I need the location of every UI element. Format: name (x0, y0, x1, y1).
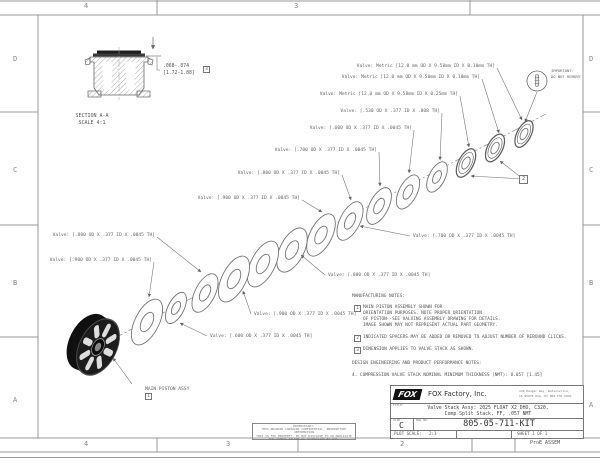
callout-valve-800-a: Valve: [.800 OD X .377 ID X .0045 TH] (238, 171, 340, 176)
zone-right-a: A (589, 401, 593, 409)
zone-bottom-2: 2 (400, 440, 404, 448)
note1-flag: 1 (354, 305, 361, 312)
flag-note-3: 3 (203, 66, 210, 73)
zone-left-a: A (13, 396, 17, 404)
zone-top-3: 3 (294, 2, 298, 10)
callout-valve-700-b: Valve: [.700 OD X .377 ID X .0045 TH] (413, 234, 515, 239)
callout-valve-600-b: Valve: [.600 OD X .377 ID X .0045 TH] (210, 334, 312, 339)
title-label: TITLE: (393, 404, 404, 407)
section-scale-label: SCALE 4:1 (78, 121, 105, 127)
plot-scale-label: PLOT SCALE: (394, 432, 422, 437)
drawing-title-line1: Valve Stack Assy: 2025 FLOAT X2 DHO, C32… (427, 406, 548, 412)
important-note-line2: DO NOT REMOVE (551, 75, 581, 79)
flag-note-1: 1 (145, 393, 152, 400)
company-address-line2: CA 95076 USA Ph 800-FOX-SHOX (519, 395, 571, 398)
note4-text: 4. COMPRESSION VALVE STACK NOMINAL MINIM… (352, 373, 542, 378)
sheet-number: SHEET 1 OF 1 (517, 432, 547, 437)
dwg-no-label: DWG NO. (416, 419, 429, 422)
zone-bottom-3: 3 (226, 440, 230, 448)
flag-note-2: 2 (519, 175, 528, 184)
drawing-title-line2: Comp Split Stack, FF, .057 NMT (445, 412, 532, 418)
section-view-drawing (85, 37, 161, 100)
fox-logo: FOX (393, 389, 423, 400)
dwg-no-value: 805-05-711-KIT (463, 420, 535, 430)
dimension-mm: [1.72-1.88] (163, 71, 195, 77)
zone-left-b: B (13, 279, 17, 287)
callout-valve-900-b: Valve: [.900 OD X .377 ID X .0045 TH] (50, 258, 152, 263)
design-notes-header: DESIGN ENGINEERING AND PRODUCT PERFORMAN… (352, 361, 482, 366)
zone-right-d: D (589, 55, 593, 63)
callout-valve-800-c: Valve: [.800 OD X .377 ID X .0045 TH] (328, 273, 430, 278)
zone-top-4: 4 (84, 2, 88, 10)
zone-bottom-4: 4 (84, 440, 88, 448)
callout-valve-metric-025: Valve: Metric [12.0 mm OD X 9.58mm ID X … (320, 92, 458, 97)
zone-right-b: B (589, 279, 593, 287)
main-piston-label: MAIN PISTON ASSY (145, 387, 189, 392)
note3-flag: 3 (354, 347, 361, 354)
callout-valve-900-a: Valve: [.900 OD X .377 ID X .0045 TH] (198, 196, 300, 201)
drawing-sheet: 4 3 4 3 2 D C B A D C B A SECTION A-A SC… (0, 0, 600, 463)
note2-flag: 2 (354, 335, 361, 342)
zone-left-d: D (13, 55, 17, 63)
zone-left-c: C (13, 166, 17, 174)
size-value: C (399, 421, 404, 430)
company-address-line1: 130 Hangar Way, Watsonville, (519, 390, 570, 393)
note1-line3: OF PISTON--SEE VALVING ASSEMBLY DRAWING … (363, 317, 500, 322)
title-block: FOX FOX Factory, Inc. 130 Hangar Way, Wa… (390, 385, 584, 439)
note3-text: DIMENSION APPLIES TO VALVE STACK AS SHOW… (363, 347, 474, 352)
note1-line2: ORIENTATION PURPOSES. NOTE PROPER ORIENT… (363, 311, 482, 316)
callout-valve-600-a: Valve: [.600 OD X .377 ID X .0045 TH] (310, 126, 412, 131)
callout-main-piston: MAIN PISTON ASSY 1 (134, 382, 189, 405)
note1-line4: IMAGE SHOWN MAY NOT REPRESENT ACTUAL PAR… (363, 323, 498, 328)
company-name: FOX Factory, Inc. (428, 390, 487, 398)
retainer-detail (527, 71, 547, 91)
callout-valve-530: Valve: [.530 OD X .377 ID X .008 TH] (340, 109, 440, 114)
main-piston-assembly (58, 307, 128, 382)
proprietary-notice: PROPRIETARY: THIS DRAWING CONTAINS CONFI… (252, 423, 356, 440)
callout-valve-700-a: Valve: [.700 OD X .377 ID X .0045 TH] (275, 148, 377, 153)
important-note-line1: IMPORTANT: (551, 69, 574, 73)
proe-assem-tag: ProE ASSEM (530, 441, 560, 447)
section-label: SECTION A-A (75, 114, 108, 120)
note1-line1: MAIN PISTON ASSEMBLY SHOWN FOR (363, 305, 442, 310)
zone-right-c: C (589, 166, 593, 174)
proprietary-line4: FOR OTHERS EXCEPT AS AUTHORIZED BY FOX. (253, 438, 355, 441)
dimension-inches: .068-.074 (163, 64, 189, 70)
callout-valve-metric-010-a: Valve: Metric [12.0 mm OD X 9.58mm ID X … (357, 64, 495, 69)
mfg-notes-header: MANUFACTURING NOTES: (352, 294, 405, 299)
callout-valve-800-b: Valve: [.800 OD X .377 ID X .0045 TH] (53, 233, 155, 238)
callout-valve-900-c: Valve: [.900 OD X .377 ID X .0045 TH] (254, 312, 356, 317)
note2-text: INDICATED SPACERS MAY BE ADDED OR REMOVE… (363, 335, 567, 340)
plot-scale-value: 2:1 (429, 432, 437, 437)
callout-valve-metric-010-b: Valve: Metric [12.0 mm OD X 9.58mm ID X … (342, 75, 480, 80)
